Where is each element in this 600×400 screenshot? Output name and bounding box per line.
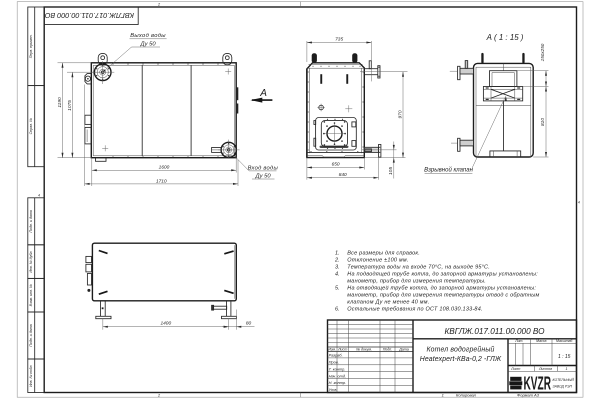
svg-text:Подп. и дата: Подп. и дата bbox=[29, 324, 33, 347]
svg-text:5.: 5. bbox=[335, 286, 340, 292]
svg-text:Температура воды на входе 70°С: Температура воды на входе 70°С, на выход… bbox=[347, 265, 490, 271]
svg-text:Масштаб: Масштаб bbox=[556, 339, 573, 343]
svg-text:На отводящей трубе котла, до з: На отводящей трубе котла, до запорной ар… bbox=[347, 285, 536, 292]
svg-text:манометр, прибор для измерения: манометр, прибор для измерения температу… bbox=[347, 279, 486, 285]
svg-text:Формат А3: Формат А3 bbox=[517, 393, 540, 398]
svg-text:4: 4 bbox=[38, 193, 40, 197]
svg-text:Ду 50: Ду 50 bbox=[139, 42, 156, 48]
svg-text:Котел водогрейный: Котел водогрейный bbox=[426, 346, 494, 354]
svg-text:1.: 1. bbox=[335, 251, 340, 257]
svg-text:Справ. №: Справ. № bbox=[29, 118, 33, 134]
svg-text:Взрывной клапан: Взрывной клапан bbox=[424, 167, 473, 174]
svg-text:Подп. и дата: Подп. и дата bbox=[29, 210, 33, 233]
svg-text:1: 1 bbox=[442, 393, 444, 398]
svg-text:А ( 1 : 15 ): А ( 1 : 15 ) bbox=[486, 33, 524, 42]
svg-text:6.: 6. bbox=[335, 307, 340, 313]
svg-text:КВГЛЖ.017.011.00.000 ВО: КВГЛЖ.017.011.00.000 ВО bbox=[44, 11, 134, 20]
svg-text:Инв. № дубл.: Инв. № дубл. bbox=[29, 251, 33, 273]
svg-text:Т. контр.: Т. контр. bbox=[329, 366, 346, 371]
svg-text:1 : 15: 1 : 15 bbox=[558, 354, 571, 360]
svg-text:Лит.: Лит. bbox=[514, 339, 523, 343]
svg-text:Лист: Лист bbox=[337, 347, 347, 351]
svg-text:Пров.: Пров. bbox=[329, 360, 339, 365]
svg-text:Ду 50: Ду 50 bbox=[254, 174, 271, 180]
svg-text:КВГЛЖ.017.011.00.000 ВО: КВГЛЖ.017.011.00.000 ВО bbox=[444, 327, 545, 336]
svg-text:1710: 1710 bbox=[156, 178, 167, 184]
svg-text:Отклонение ±100 мм.: Отклонение ±100 мм. bbox=[347, 258, 408, 264]
svg-text:На подводящей трубе котла, до: На подводящей трубе котла, до запорной а… bbox=[347, 271, 538, 278]
svg-text:Копировал: Копировал bbox=[456, 393, 477, 398]
svg-text:Разраб.: Разраб. bbox=[329, 353, 343, 358]
svg-text:4.: 4. bbox=[335, 272, 340, 278]
svg-text:Подп.: Подп. bbox=[383, 347, 393, 351]
svg-text:KVZR: KVZR bbox=[524, 372, 552, 393]
svg-text:970: 970 bbox=[397, 110, 403, 118]
svg-text:№ докум.: № докум. bbox=[356, 347, 372, 351]
svg-text:105: 105 bbox=[388, 167, 394, 175]
svg-text:150х250: 150х250 bbox=[540, 43, 545, 61]
svg-text:Инв. № подл.: Инв. № подл. bbox=[29, 365, 33, 387]
svg-text:Лист: Лист bbox=[510, 367, 520, 371]
svg-text:4: 4 bbox=[578, 201, 580, 205]
svg-text:Остальные требования по ОСТ 10: Остальные требования по ОСТ 108.030.133-… bbox=[347, 307, 482, 313]
svg-text:1: 1 bbox=[566, 367, 568, 371]
svg-text:Выход воды: Выход воды bbox=[130, 33, 166, 39]
svg-text:Все размеры для справок.: Все размеры для справок. bbox=[347, 251, 420, 257]
svg-text:Утв.: Утв. bbox=[329, 387, 338, 392]
svg-text:810: 810 bbox=[540, 118, 546, 126]
svg-text:КОТЕЛЬНЫЙ: КОТЕЛЬНЫЙ bbox=[553, 378, 575, 382]
svg-text:Вход воды: Вход воды bbox=[248, 165, 279, 171]
svg-text:1190: 1190 bbox=[57, 97, 63, 108]
svg-text:1600: 1600 bbox=[159, 165, 170, 171]
svg-text:1075: 1075 bbox=[67, 100, 73, 111]
svg-text:840: 840 bbox=[339, 172, 347, 178]
svg-text:Нач. отд.: Нач. отд. bbox=[329, 373, 346, 378]
svg-text:Масса: Масса bbox=[536, 339, 546, 343]
svg-text:Дата: Дата bbox=[398, 347, 408, 351]
svg-text:манометр, прибор для измерения: манометр, прибор для измерения температу… bbox=[347, 293, 539, 299]
svg-text:Heatexpert-КВа-0,2 -ГЛЖ: Heatexpert-КВа-0,2 -ГЛЖ bbox=[420, 356, 502, 363]
svg-text:735: 735 bbox=[335, 37, 343, 43]
svg-text:650: 650 bbox=[332, 162, 340, 168]
svg-text:клапаном Ду не менее 40 мм.: клапаном Ду не менее 40 мм. bbox=[347, 300, 429, 306]
svg-text:Н. контр.: Н. контр. bbox=[329, 380, 347, 385]
svg-text:Перв. примен.: Перв. примен. bbox=[29, 34, 33, 58]
svg-text:Листов: Листов bbox=[538, 367, 552, 371]
svg-text:Изм.: Изм. bbox=[328, 347, 336, 351]
svg-text:ЗАВОД РЭП: ЗАВОД РЭП bbox=[553, 385, 573, 389]
svg-text:А: А bbox=[259, 88, 267, 99]
svg-text:80: 80 bbox=[246, 321, 252, 327]
svg-text:2.: 2. bbox=[334, 258, 340, 264]
svg-text:Взам. инв. №: Взам. инв. № bbox=[29, 284, 33, 306]
svg-text:3.: 3. bbox=[335, 265, 340, 271]
svg-text:1400: 1400 bbox=[160, 321, 171, 327]
